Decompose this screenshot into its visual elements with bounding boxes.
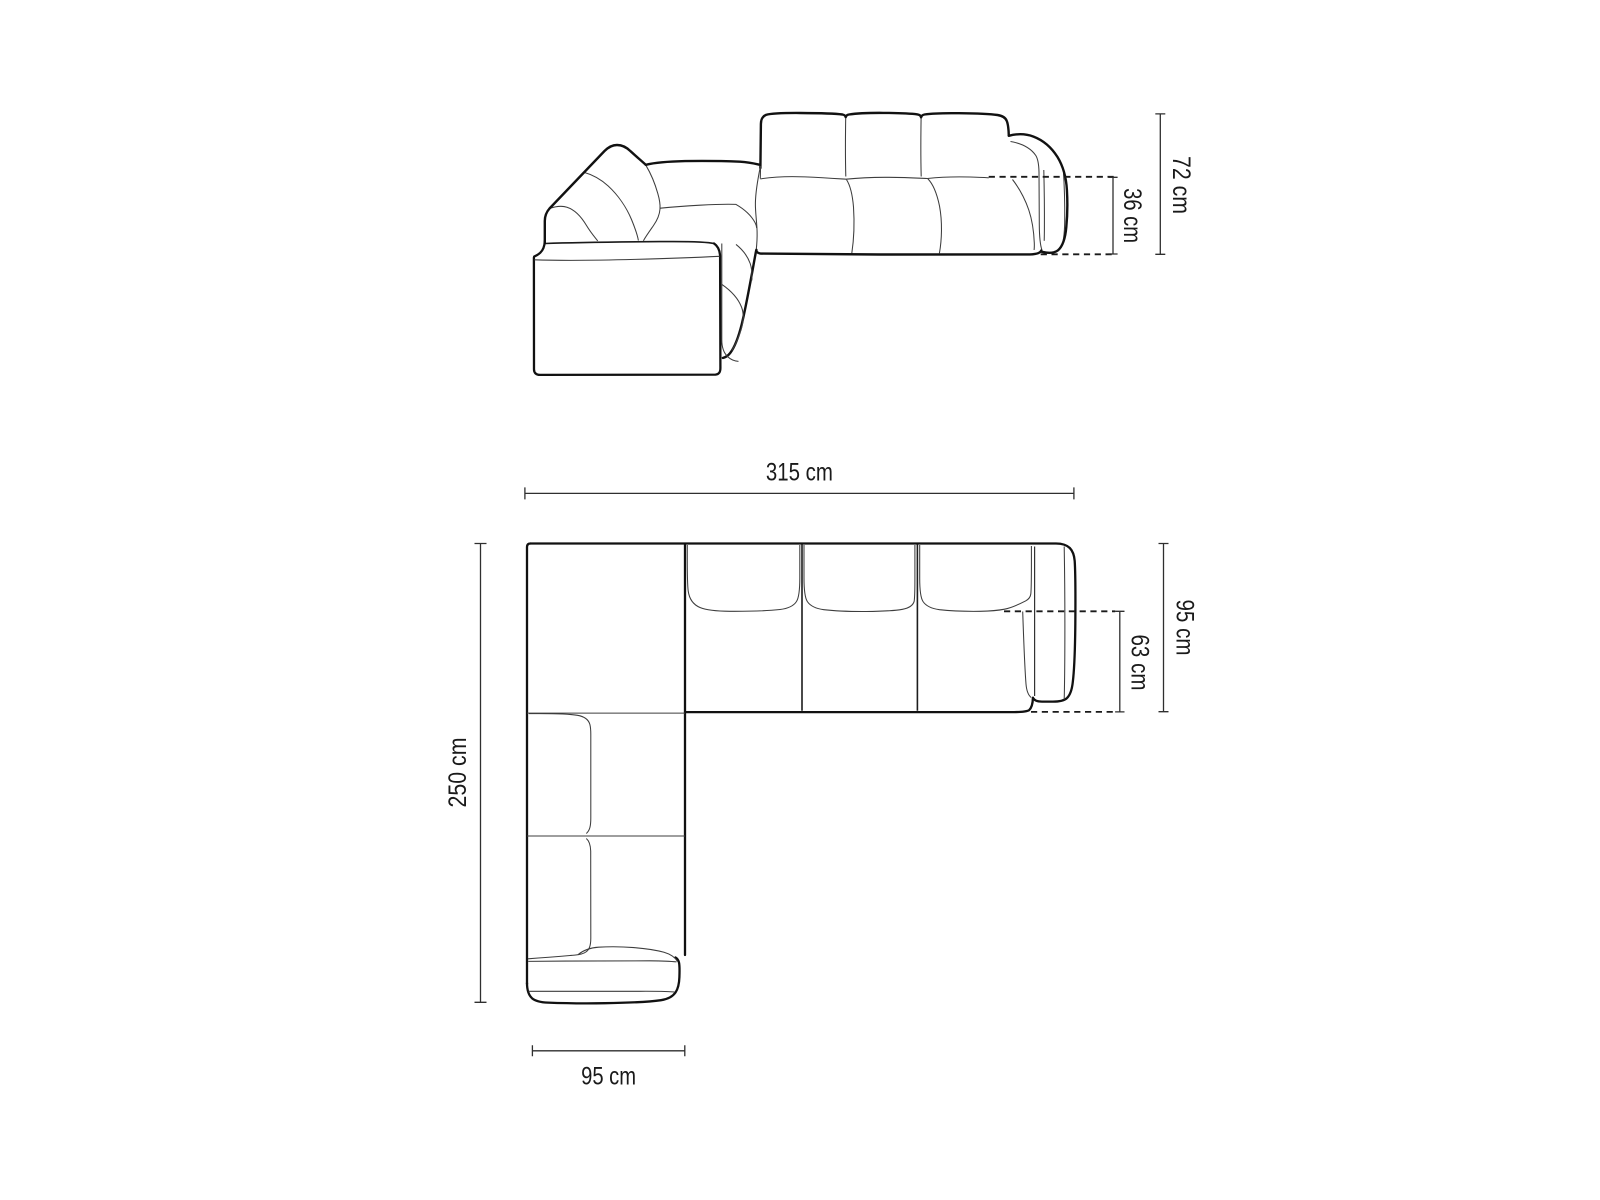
svg-text:250 cm: 250 cm [444, 738, 472, 808]
svg-text:36 cm: 36 cm [1118, 188, 1146, 243]
svg-text:95 cm: 95 cm [581, 1063, 636, 1091]
svg-text:315 cm: 315 cm [766, 458, 833, 486]
svg-text:63 cm: 63 cm [1126, 635, 1154, 691]
svg-text:95 cm: 95 cm [1171, 600, 1199, 656]
svg-text:72 cm: 72 cm [1167, 156, 1195, 214]
